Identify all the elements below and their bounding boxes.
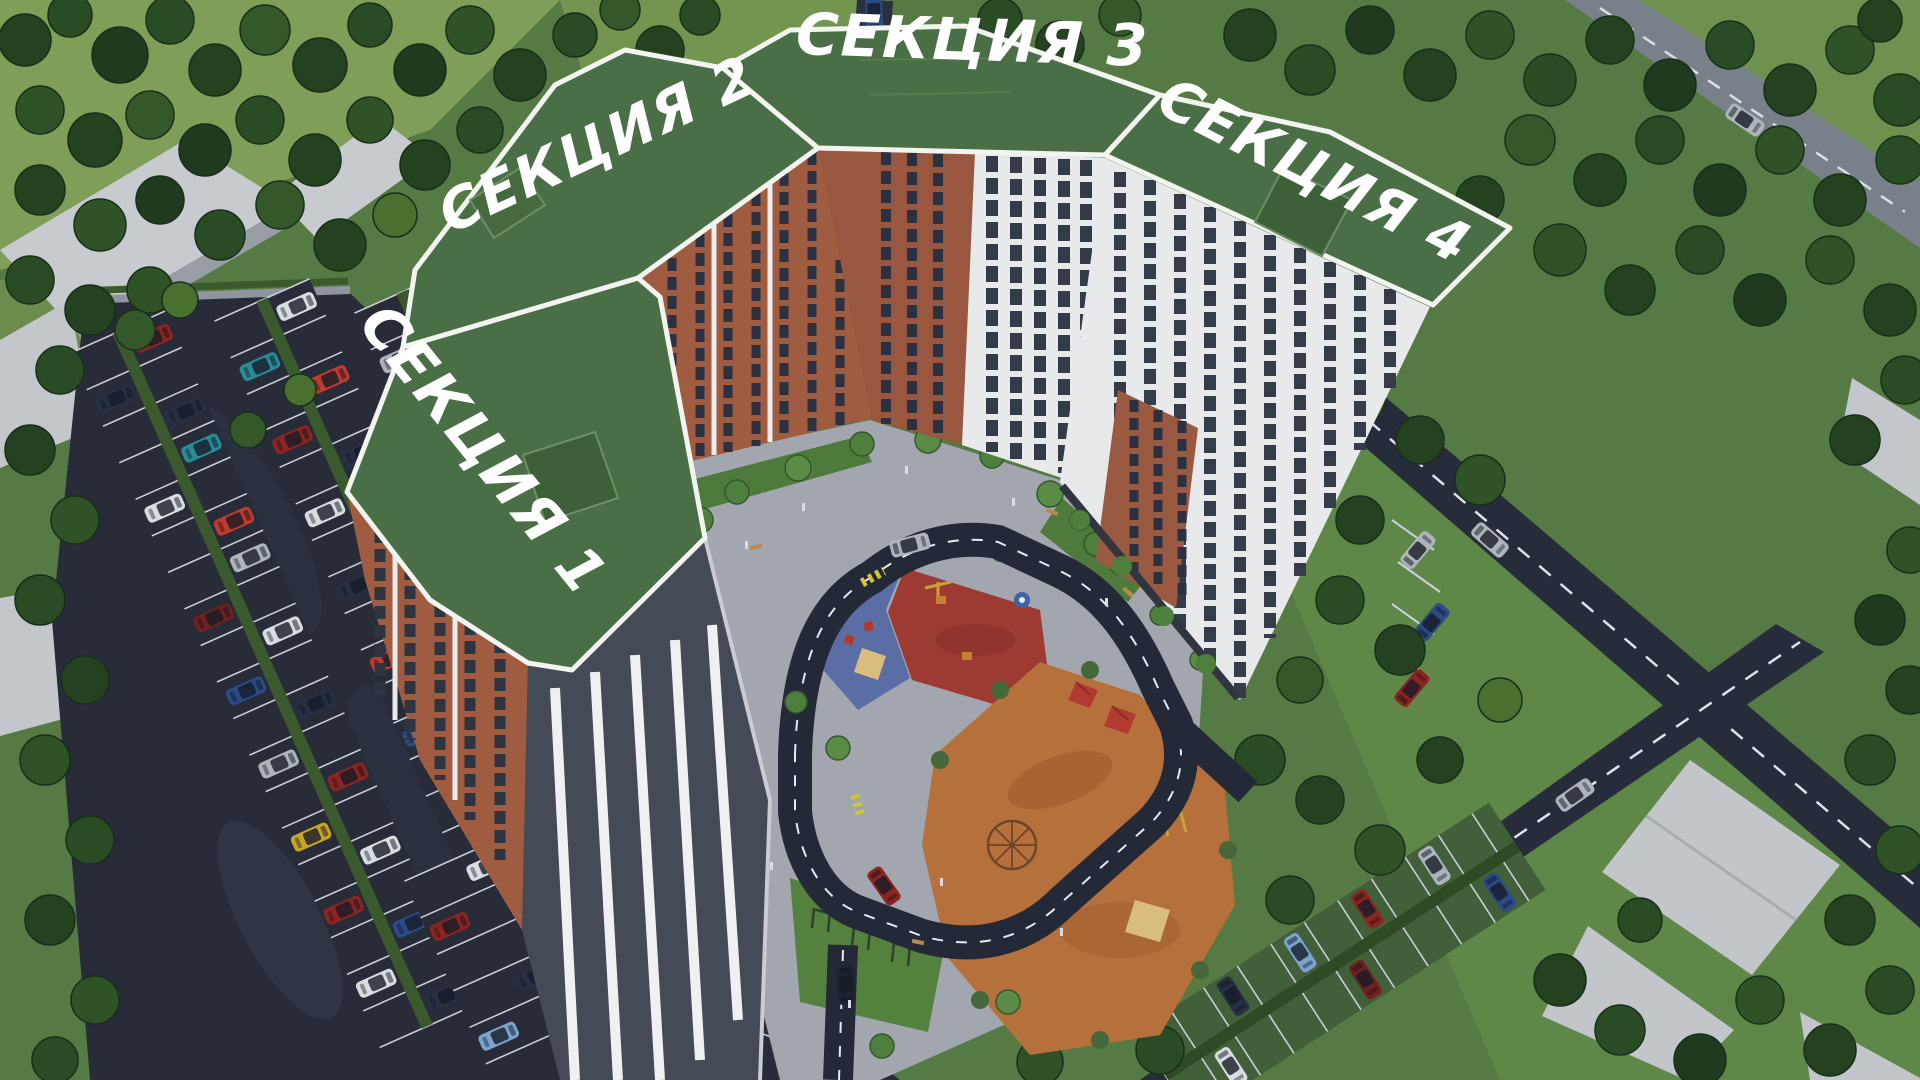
aerial-render: СЕКЦИЯ 1 СЕКЦИЯ 2 СЕКЦИЯ 3 СЕКЦИЯ 4 bbox=[0, 0, 1920, 1080]
genplan-screenshot: СЕКЦИЯ 1 СЕКЦИЯ 2 СЕКЦИЯ 3 СЕКЦИЯ 4 bbox=[0, 0, 1920, 1080]
section-3-label[interactable]: СЕКЦИЯ 3 bbox=[795, 0, 1150, 80]
car bbox=[836, 964, 856, 1005]
